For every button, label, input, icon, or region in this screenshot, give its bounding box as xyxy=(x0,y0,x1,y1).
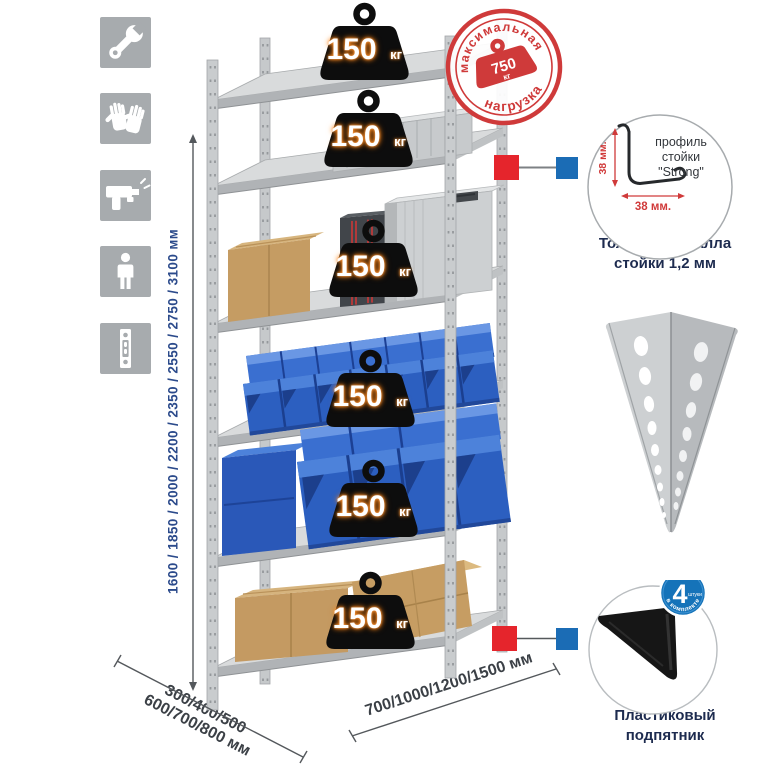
profile-width-dim: 38 мм. xyxy=(635,201,671,213)
callout-bottom xyxy=(492,626,578,651)
max-load-stamp: максимальная нагрузка 750 кг xyxy=(441,4,567,130)
height-dimension-line xyxy=(189,134,197,691)
callout-top xyxy=(494,155,578,180)
shelf-load-badge-4: 150 кг xyxy=(322,349,419,427)
plastic-foot-detail: 4 штуки в комплекте xyxy=(583,580,733,725)
profile-label-line1: профиль xyxy=(655,135,707,149)
load-value: 150 xyxy=(320,35,383,65)
product-infographic: 1600 / 1850 / 2000 / 2200 / 2350 / 2550 … xyxy=(0,0,765,765)
load-unit: кг xyxy=(396,616,408,631)
load-value: 150 xyxy=(329,492,392,522)
load-unit: кг xyxy=(399,504,411,519)
load-unit: кг xyxy=(399,264,411,279)
blue-marker-bottom xyxy=(556,628,578,650)
profile-label-line2: стойки xyxy=(662,150,700,164)
load-unit: кг xyxy=(390,47,402,62)
red-marker-top xyxy=(494,155,519,180)
load-value: 150 xyxy=(329,252,392,282)
cardboard-box-small xyxy=(228,232,324,322)
load-value: 150 xyxy=(326,604,389,634)
blue-marker-top xyxy=(556,157,578,179)
quantity-badge: 4 штуки в комплекте xyxy=(660,580,706,616)
load-value: 150 xyxy=(326,382,389,412)
shelf-load-badge-1: 150 кг xyxy=(316,2,413,80)
profile-label-line3: "Strong" xyxy=(658,165,704,179)
shelf-load-badge-6: 150 кг xyxy=(322,571,419,649)
shelf-load-badge-2: 150 кг xyxy=(320,89,417,167)
corner-post-image xyxy=(597,298,745,543)
load-unit: кг xyxy=(396,394,408,409)
shelf-load-badge-3: 150 кг xyxy=(325,219,422,297)
post-profile-detail: 38 мм. 38 мм. профиль стойки "Strong" xyxy=(583,110,739,266)
quantity-small-text: штуки xyxy=(688,592,702,598)
profile-height-dim: 38 мм. xyxy=(597,141,609,174)
load-unit: кг xyxy=(394,134,406,149)
load-value: 150 xyxy=(324,122,387,152)
shelf-load-badge-5: 150 кг xyxy=(325,459,422,537)
red-marker-bottom xyxy=(492,626,517,651)
